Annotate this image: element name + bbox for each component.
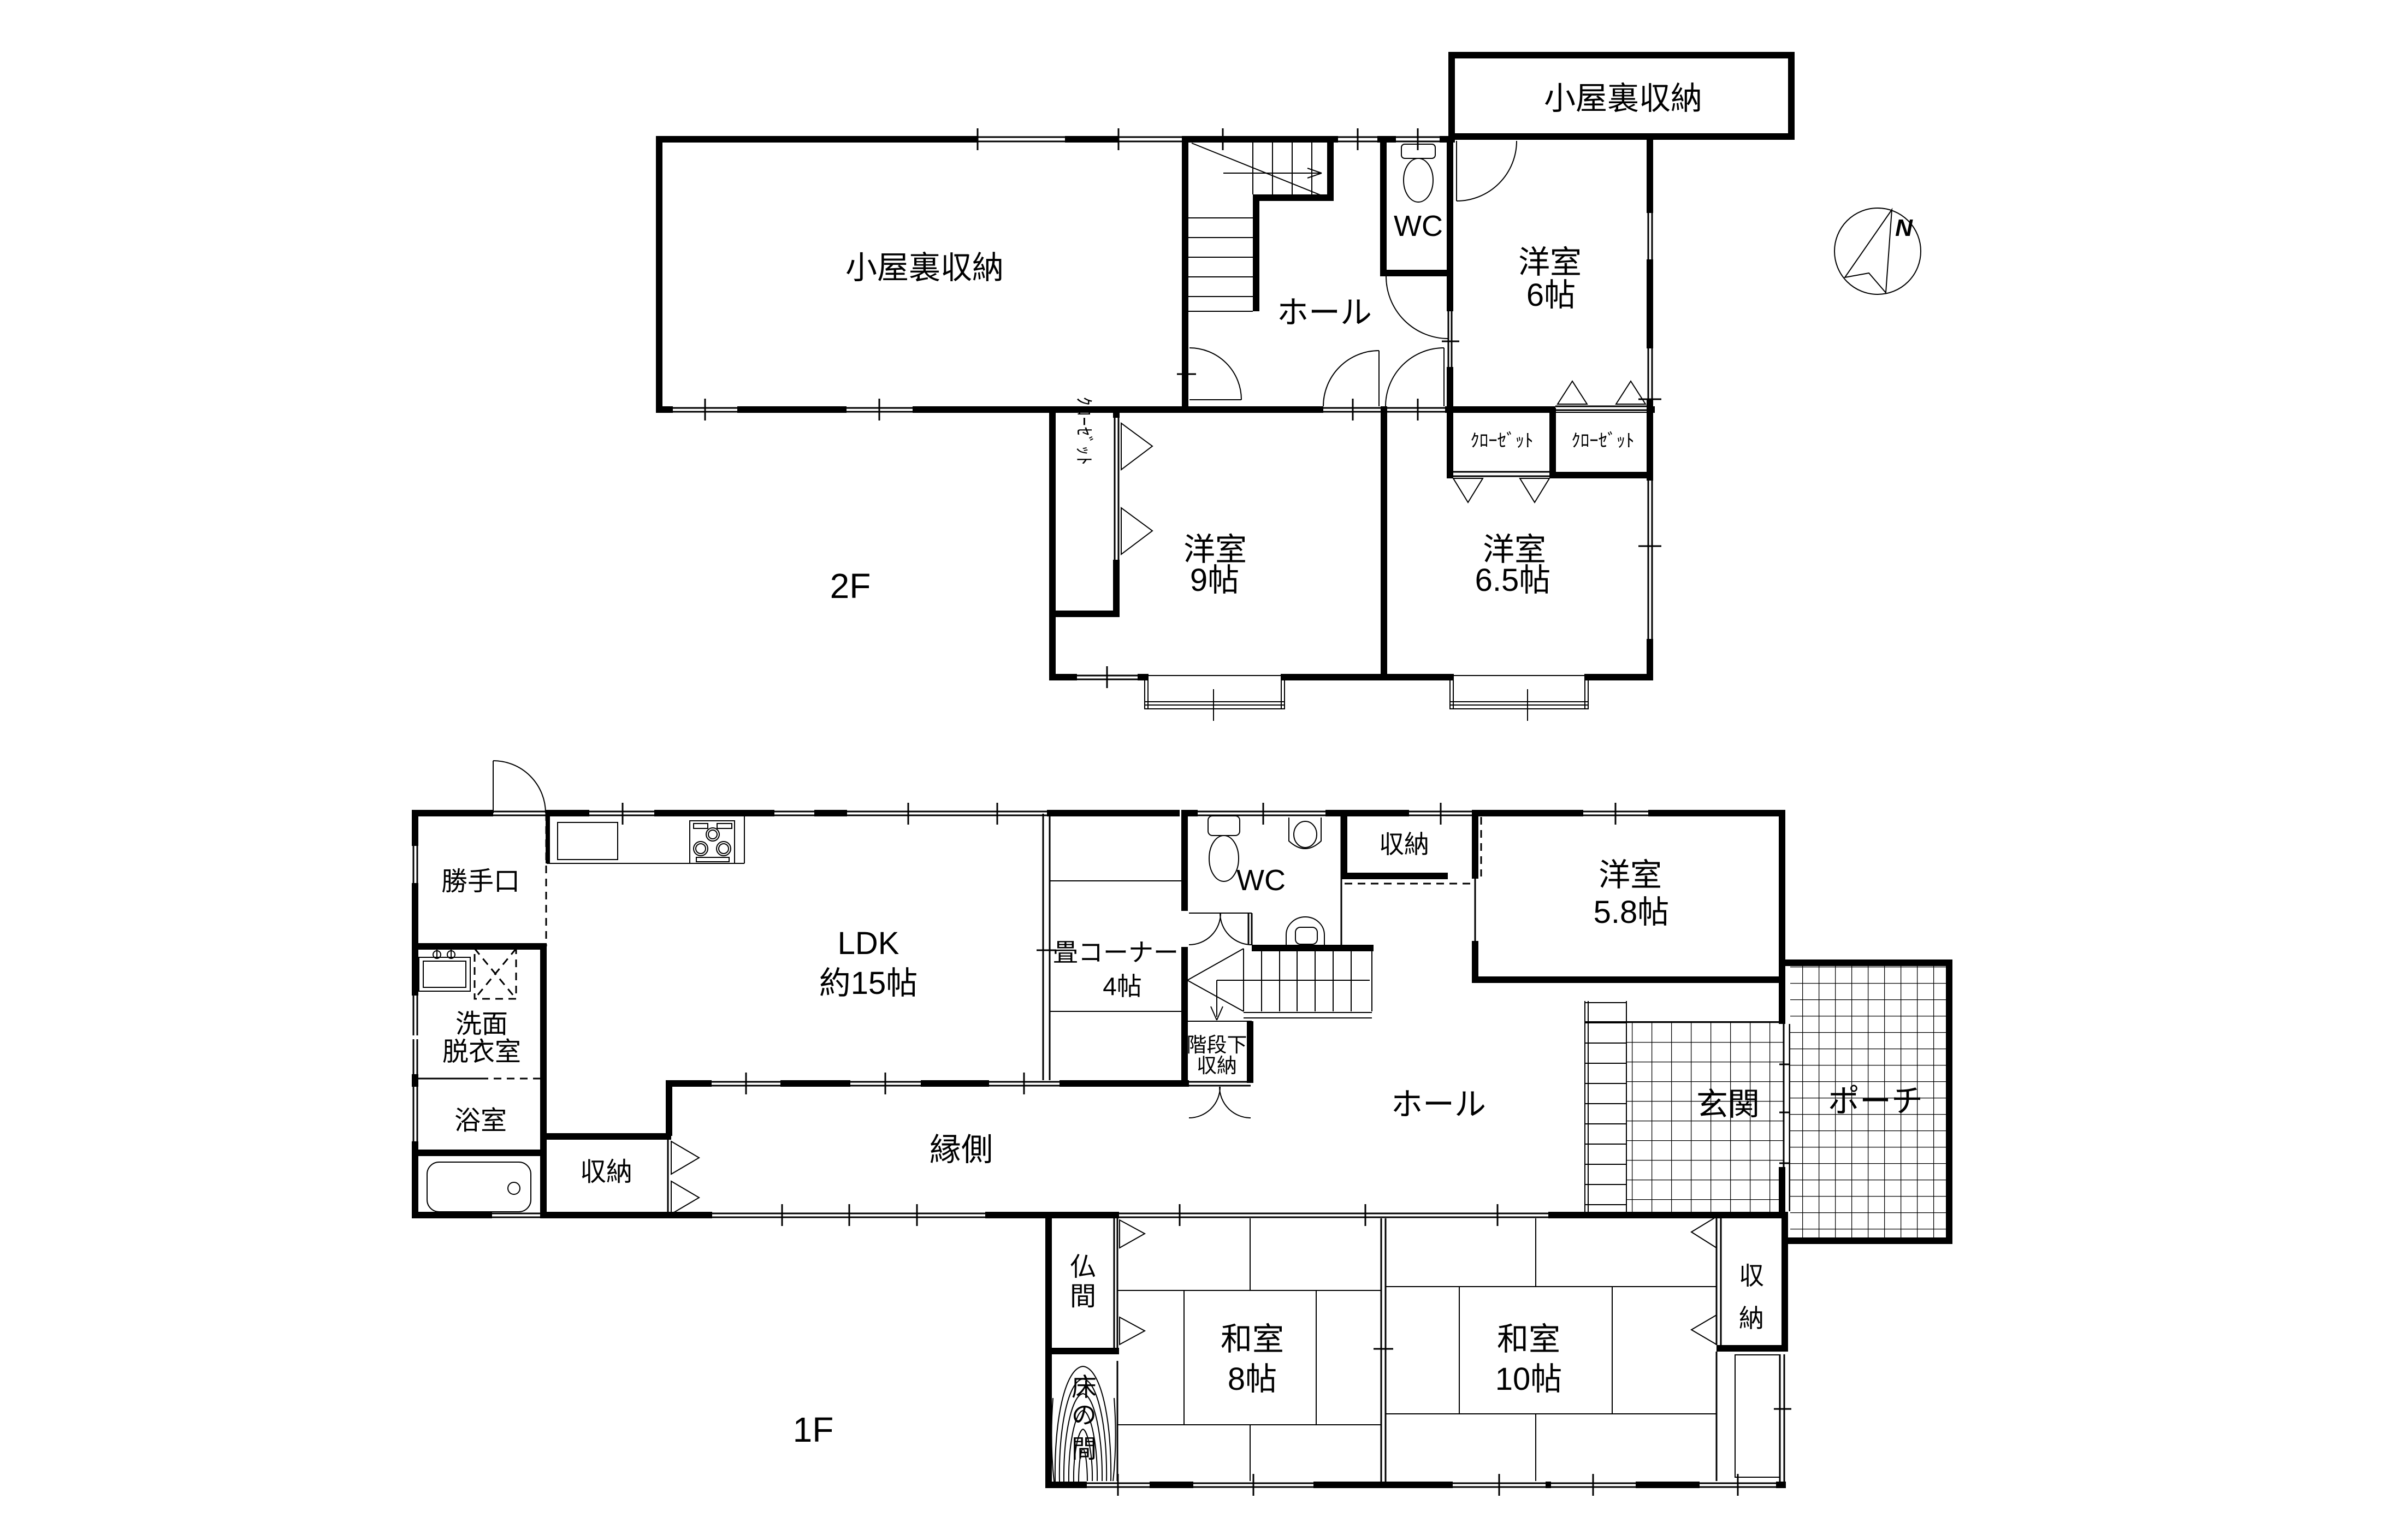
svg-text:WC: WC — [1236, 864, 1286, 897]
svg-text:4帖: 4帖 — [1103, 972, 1142, 1000]
svg-text:9帖: 9帖 — [1190, 562, 1239, 598]
svg-text:N: N — [1895, 215, 1913, 241]
svg-text:浴室: 浴室 — [454, 1106, 507, 1135]
svg-text:ポーチ: ポーチ — [1828, 1083, 1923, 1119]
svg-text:階段下: 階段下 — [1187, 1034, 1247, 1056]
svg-text:勝手口: 勝手口 — [441, 867, 520, 896]
svg-text:間: 間 — [1070, 1282, 1096, 1311]
svg-text:2F: 2F — [830, 566, 871, 606]
svg-text:約15帖: 約15帖 — [819, 966, 918, 1001]
svg-text:和室: 和室 — [1497, 1322, 1560, 1357]
svg-text:8帖: 8帖 — [1228, 1361, 1277, 1397]
svg-text:ホール: ホール — [1277, 295, 1372, 330]
svg-text:畳コーナー: 畳コーナー — [1053, 938, 1179, 967]
svg-text:LDK: LDK — [838, 926, 899, 961]
svg-text:収: 収 — [1739, 1261, 1764, 1290]
svg-text:脱衣室: 脱衣室 — [442, 1038, 521, 1067]
svg-text:10帖: 10帖 — [1495, 1361, 1562, 1397]
svg-text:収納: 収納 — [1379, 830, 1429, 858]
svg-text:5.8帖: 5.8帖 — [1594, 895, 1670, 930]
svg-text:1F: 1F — [793, 1410, 834, 1449]
svg-text:小屋裏収納: 小屋裏収納 — [845, 250, 1004, 286]
svg-text:仏: 仏 — [1070, 1253, 1096, 1282]
svg-text:玄関: 玄関 — [1696, 1087, 1760, 1122]
svg-text:ｸﾛｰｾﾞｯﾄ: ｸﾛｰｾﾞｯﾄ — [1470, 430, 1534, 451]
svg-text:洋室: 洋室 — [1599, 857, 1662, 893]
svg-text:洋室: 洋室 — [1518, 245, 1582, 280]
svg-text:和室: 和室 — [1221, 1322, 1284, 1357]
svg-text:収納: 収納 — [1197, 1055, 1237, 1077]
svg-text:ｸﾛｰｾﾞｯﾄ: ｸﾛｰｾﾞｯﾄ — [1074, 396, 1094, 466]
svg-text:収納: 収納 — [580, 1158, 632, 1187]
svg-text:洗面: 洗面 — [455, 1010, 508, 1039]
svg-text:納: 納 — [1739, 1304, 1764, 1332]
svg-text:6.5帖: 6.5帖 — [1475, 562, 1551, 598]
svg-text:6帖: 6帖 — [1526, 277, 1576, 313]
svg-text:WC: WC — [1394, 210, 1443, 242]
svg-text:ホール: ホール — [1391, 1087, 1486, 1122]
svg-text:縁側: 縁側 — [930, 1132, 993, 1168]
svg-text:小屋裏収納: 小屋裏収納 — [1544, 81, 1702, 116]
svg-text:ｸﾛｰｾﾞｯﾄ: ｸﾛｰｾﾞｯﾄ — [1571, 430, 1635, 451]
